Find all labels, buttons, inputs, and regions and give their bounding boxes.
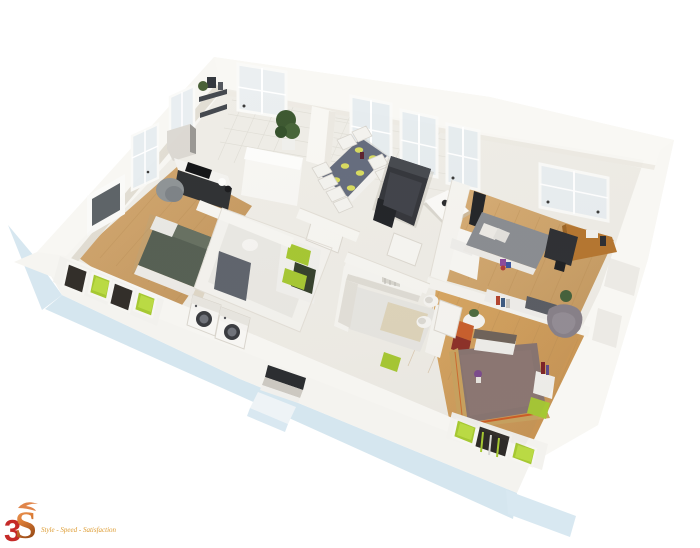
svg-text:S: S (15, 504, 37, 547)
svg-text:Style - Speed - Satisfaction: Style - Speed - Satisfaction (41, 526, 117, 534)
